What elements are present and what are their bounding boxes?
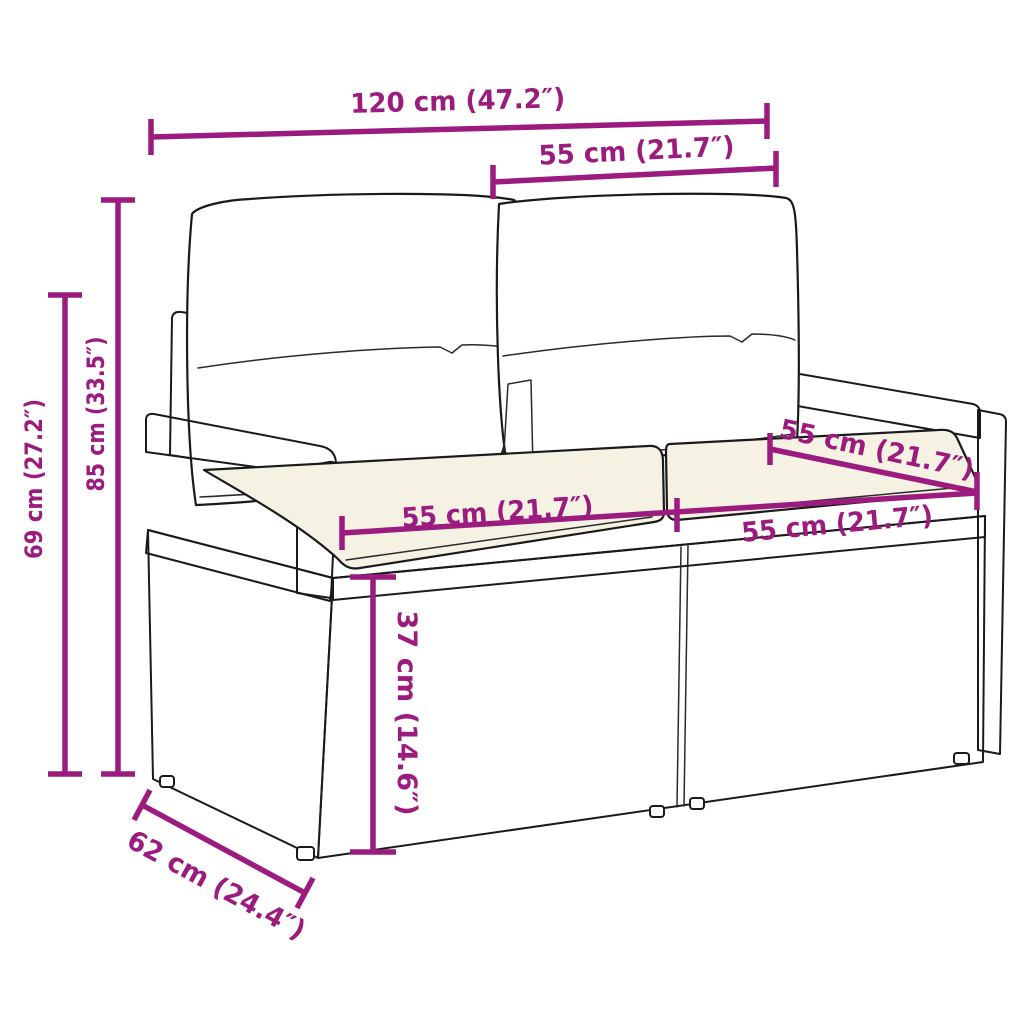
module-seam [677, 546, 688, 807]
foot-right [954, 753, 969, 764]
dimension-diagram: 120 cm (47.2″) 55 cm (21.7″) 85 cm (33.5… [0, 0, 1024, 1024]
dim-total-height: 85 cm (33.5″) [82, 200, 135, 774]
right-corner-post [978, 410, 1006, 754]
foot-front-left [297, 847, 314, 860]
dim-seat-height-label: 37 cm (14.6″) [391, 611, 422, 816]
dim-depth: 62 cm (24.4″) [122, 790, 313, 946]
dim-seat-height: 37 cm (14.6″) [350, 577, 422, 852]
base-side-face [148, 530, 333, 858]
base-side-top-braid [146, 530, 333, 601]
dim-seat-width-top: 55 cm (21.7″) [493, 131, 776, 199]
foot-back-left [160, 776, 174, 787]
diagram-canvas: 120 cm (47.2″) 55 cm (21.7″) 85 cm (33.5… [0, 0, 1024, 1024]
dim-total-height-label: 85 cm (33.5″) [82, 337, 110, 492]
back-cushion-right [497, 194, 799, 470]
foot-middle-right [690, 798, 704, 809]
dim-armrest-height: 69 cm (27.2″) [20, 295, 82, 774]
dim-overall-width-label: 120 cm (47.2″) [350, 83, 566, 120]
foot-middle-left [650, 806, 664, 817]
dim-seat-width-top-label: 55 cm (21.7″) [538, 131, 735, 172]
dim-armrest-height-label: 69 cm (27.2″) [20, 399, 48, 559]
